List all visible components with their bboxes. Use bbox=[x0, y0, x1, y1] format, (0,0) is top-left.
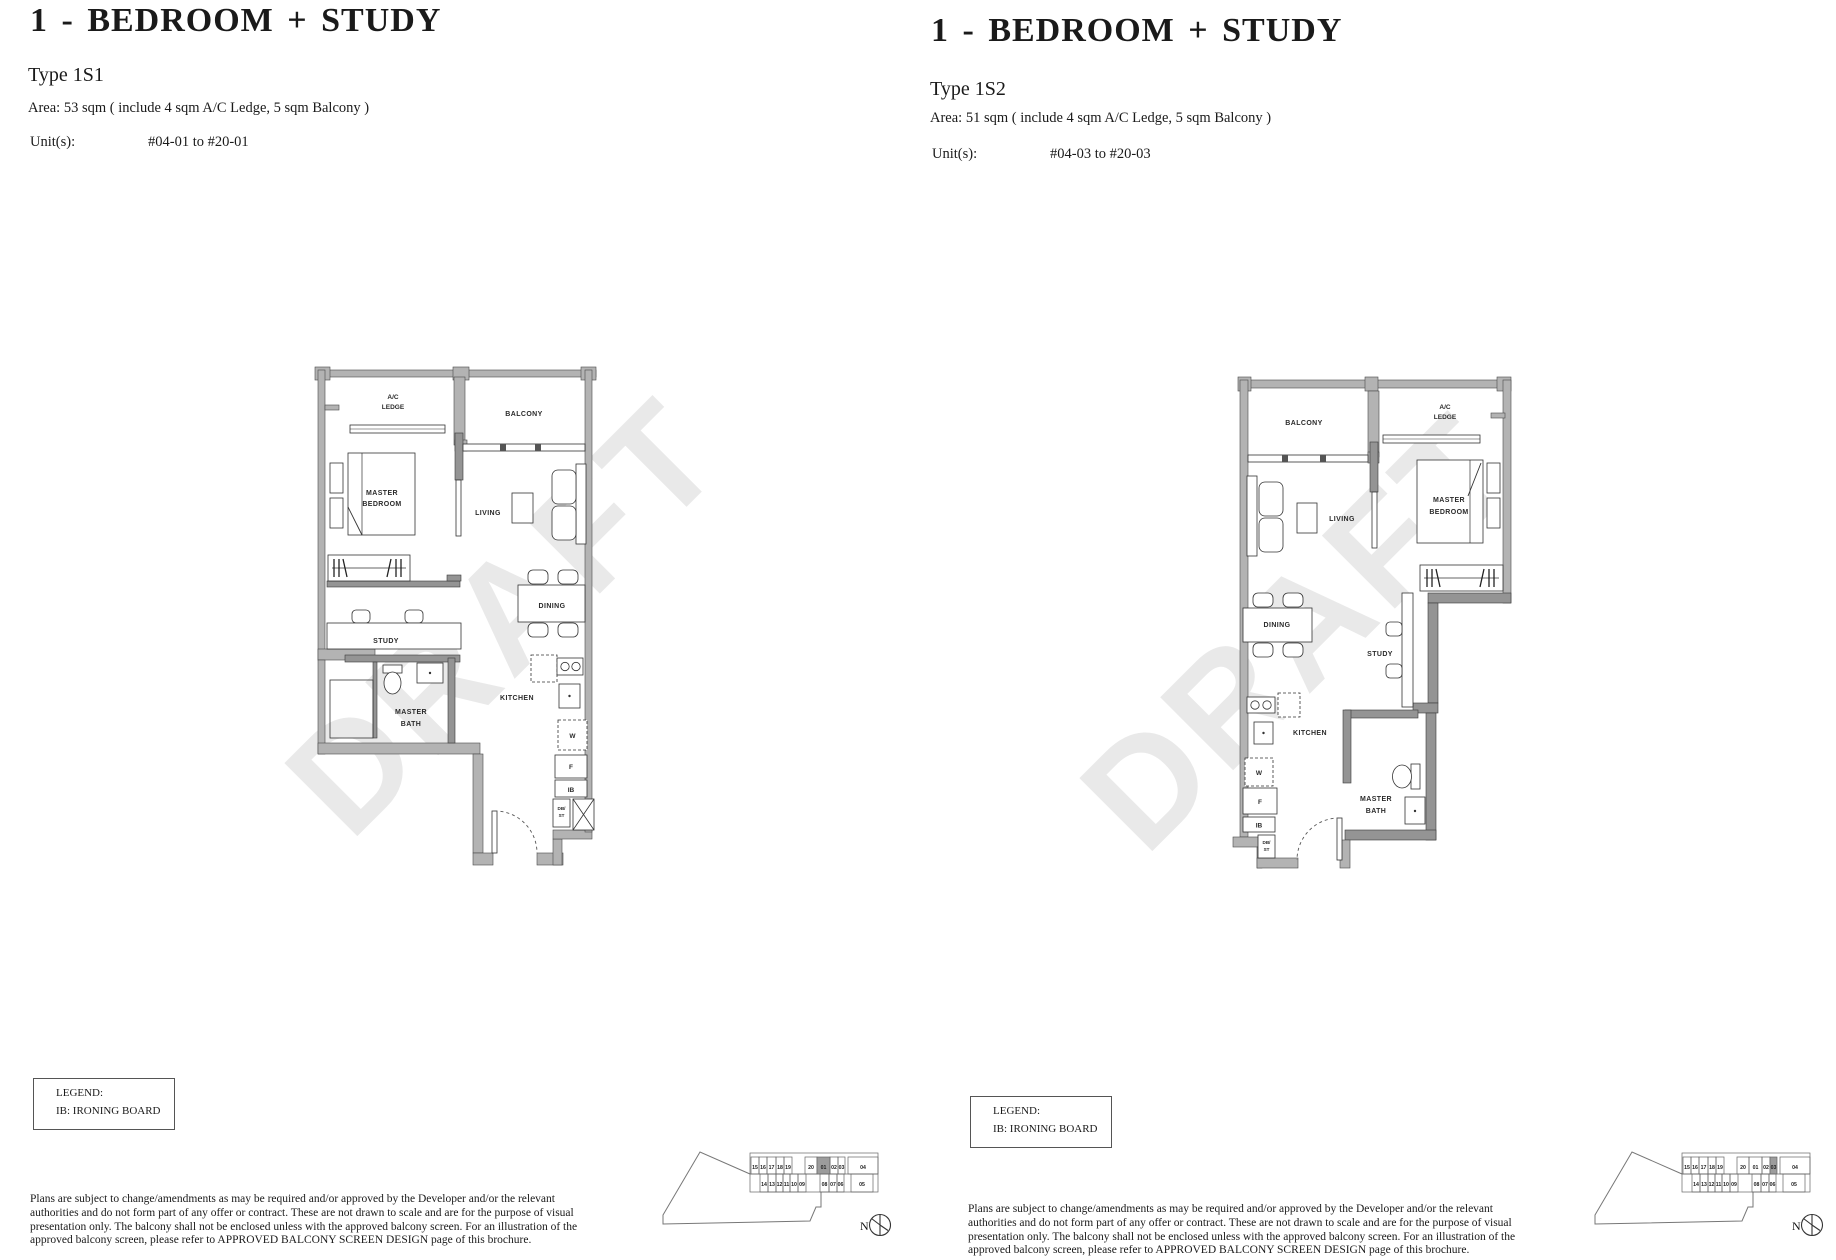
label-bath-2: BATH bbox=[401, 721, 422, 728]
disclaimer-left: Plans are subject to change/amendments a… bbox=[30, 1193, 590, 1248]
label-ironing-board: IB bbox=[1256, 823, 1263, 830]
label-dining: DINING bbox=[1264, 622, 1291, 629]
keyplan-unit: 07 bbox=[1762, 1182, 1768, 1188]
label-ac-2: LEDGE bbox=[1434, 414, 1457, 421]
legend-item: IB: IRONING BOARD bbox=[993, 1123, 1098, 1135]
label-db-1: DB/ bbox=[558, 806, 567, 811]
disclaimer-right: Plans are subject to change/amendments a… bbox=[968, 1203, 1528, 1258]
legend-item: IB: IRONING BOARD bbox=[56, 1105, 161, 1117]
keyplan-unit: 05 bbox=[1791, 1182, 1797, 1188]
keyplan-unit: 20 bbox=[1740, 1165, 1746, 1171]
legend-box-left: LEGEND: IB: IRONING BOARD bbox=[33, 1078, 175, 1130]
keyplan-cells-bottom: 14 13 12 11 10 09 08 07 06 05 bbox=[1692, 1174, 1805, 1192]
label-db-2: ST bbox=[1264, 847, 1270, 852]
label-bath-1: MASTER bbox=[395, 709, 427, 716]
label-balcony: BALCONY bbox=[505, 411, 542, 418]
keyplan-unit: 02 bbox=[1763, 1165, 1769, 1171]
keyplan-unit: 04 bbox=[1792, 1165, 1798, 1171]
north-label: N bbox=[1792, 1219, 1801, 1233]
keyplan-unit: 06 bbox=[838, 1182, 844, 1188]
label-kitchen: KITCHEN bbox=[500, 695, 534, 702]
label-study: STUDY bbox=[373, 638, 399, 645]
keyplan-unit: 15 bbox=[752, 1165, 758, 1171]
keyplan-unit: 13 bbox=[1701, 1182, 1707, 1188]
keyplan-unit: 03 bbox=[839, 1165, 845, 1171]
keyplan-unit: 08 bbox=[822, 1182, 828, 1188]
floorplan-1s1: A/C LEDGE BALCONY MASTER BEDROOM LIVING … bbox=[313, 363, 603, 873]
north-label: N bbox=[860, 1219, 869, 1233]
keyplan-unit: 09 bbox=[799, 1182, 805, 1188]
legend-box-right: LEGEND: IB: IRONING BOARD bbox=[970, 1096, 1112, 1148]
units-label: Unit(s): bbox=[932, 146, 977, 162]
floorplan-1s2: BALCONY A/C LEDGE MASTER BEDROOM LIVING … bbox=[1230, 375, 1515, 875]
keyplan-unit: 14 bbox=[1693, 1182, 1699, 1188]
unit-title-1s1: 1 - BEDROOM + STUDY bbox=[30, 2, 441, 40]
label-kitchen: KITCHEN bbox=[1293, 730, 1327, 737]
keyplan-unit: 17 bbox=[769, 1165, 775, 1171]
label-washer: W bbox=[1256, 770, 1263, 777]
keyplan-unit: 08 bbox=[1754, 1182, 1760, 1188]
keyplan-unit: 19 bbox=[1717, 1165, 1723, 1171]
keyplan-cells-top: 15 16 17 18 19 20 01 02 03 04 bbox=[1683, 1157, 1810, 1174]
keyplan-1s1: 15 16 17 18 19 20 01 02 03 04 14 13 12 1… bbox=[660, 1148, 905, 1260]
units-label: Unit(s): bbox=[30, 134, 75, 150]
keyplan-unit: 05 bbox=[859, 1182, 865, 1188]
label-living: LIVING bbox=[1329, 516, 1355, 523]
keyplan-unit: 11 bbox=[784, 1182, 790, 1188]
label-mbr-2: BEDROOM bbox=[362, 501, 401, 508]
label-ironing-board: IB bbox=[568, 787, 575, 794]
keyplan-unit: 07 bbox=[830, 1182, 836, 1188]
keyplan-unit: 10 bbox=[1723, 1182, 1729, 1188]
keyplan-cells-top: 15 16 17 18 19 20 01 02 03 04 bbox=[751, 1157, 878, 1174]
units-value: #04-01 to #20-01 bbox=[148, 134, 249, 151]
label-db-1: DB/ bbox=[1263, 840, 1272, 845]
keyplan-unit-highlighted: 03 bbox=[1771, 1165, 1777, 1171]
label-ac-1: A/C bbox=[1439, 404, 1451, 411]
units-value: #04-03 to #20-03 bbox=[1050, 146, 1151, 163]
label-mbr-1: MASTER bbox=[1433, 497, 1465, 504]
label-bath-1: MASTER bbox=[1360, 796, 1392, 803]
label-bath-2: BATH bbox=[1366, 808, 1387, 815]
keyplan-unit: 14 bbox=[761, 1182, 767, 1188]
keyplan-unit: 18 bbox=[1709, 1165, 1715, 1171]
label-fridge: F bbox=[1258, 799, 1262, 806]
label-fridge: F bbox=[569, 764, 573, 771]
keyplan-unit: 12 bbox=[777, 1182, 783, 1188]
unit-type-1s1: Type 1S1 bbox=[28, 64, 104, 87]
keyplan-unit: 09 bbox=[1731, 1182, 1737, 1188]
keyplan-unit: 16 bbox=[1692, 1165, 1698, 1171]
north-compass: N bbox=[1792, 1215, 1823, 1236]
keyplan-unit: 02 bbox=[831, 1165, 837, 1171]
unit-title-1s2: 1 - BEDROOM + STUDY bbox=[931, 12, 1342, 50]
keyplan-unit: 19 bbox=[785, 1165, 791, 1171]
unit-area-1s2: Area: 51 sqm ( include 4 sqm A/C Ledge, … bbox=[930, 110, 1271, 127]
label-mbr-2: BEDROOM bbox=[1429, 509, 1468, 516]
keyplan-unit: 17 bbox=[1701, 1165, 1707, 1171]
keyplan-unit: 11 bbox=[1716, 1182, 1722, 1188]
keyplan-unit: 15 bbox=[1684, 1165, 1690, 1171]
keyplan-unit-highlighted: 01 bbox=[821, 1165, 827, 1171]
keyplan-unit: 18 bbox=[777, 1165, 783, 1171]
label-balcony: BALCONY bbox=[1285, 420, 1322, 427]
label-ac-2: LEDGE bbox=[382, 404, 405, 411]
keyplan-1s2: 15 16 17 18 19 20 01 02 03 04 14 13 12 1… bbox=[1592, 1148, 1836, 1260]
keyplan-unit: 01 bbox=[1753, 1165, 1759, 1171]
unit-numbers-1s2: Unit(s): #04-03 to #20-03 bbox=[932, 146, 977, 163]
label-dining: DINING bbox=[539, 603, 566, 610]
keyplan-unit: 06 bbox=[1770, 1182, 1776, 1188]
unit-area-1s1: Area: 53 sqm ( include 4 sqm A/C Ledge, … bbox=[28, 100, 369, 117]
legend-title: LEGEND: bbox=[56, 1087, 103, 1099]
label-living: LIVING bbox=[475, 510, 501, 517]
label-mbr-1: MASTER bbox=[366, 490, 398, 497]
label-ac-1: A/C bbox=[387, 394, 399, 401]
unit-type-1s2: Type 1S2 bbox=[930, 78, 1006, 101]
keyplan-unit: 04 bbox=[860, 1165, 866, 1171]
label-washer: W bbox=[569, 733, 576, 740]
keyplan-unit: 20 bbox=[808, 1165, 814, 1171]
north-compass: N bbox=[860, 1215, 891, 1236]
legend-title: LEGEND: bbox=[993, 1105, 1040, 1117]
keyplan-unit: 10 bbox=[791, 1182, 797, 1188]
label-study: STUDY bbox=[1367, 651, 1393, 658]
keyplan-unit: 16 bbox=[760, 1165, 766, 1171]
unit-numbers-1s1: Unit(s): #04-01 to #20-01 bbox=[30, 134, 75, 151]
label-db-2: ST bbox=[559, 813, 565, 818]
keyplan-unit: 12 bbox=[1709, 1182, 1715, 1188]
brochure-page: 1 - BEDROOM + STUDY Type 1S1 Area: 53 sq… bbox=[0, 0, 1836, 1260]
keyplan-cells-bottom: 14 13 12 11 10 09 08 07 06 05 bbox=[760, 1174, 873, 1192]
keyplan-unit: 13 bbox=[769, 1182, 775, 1188]
